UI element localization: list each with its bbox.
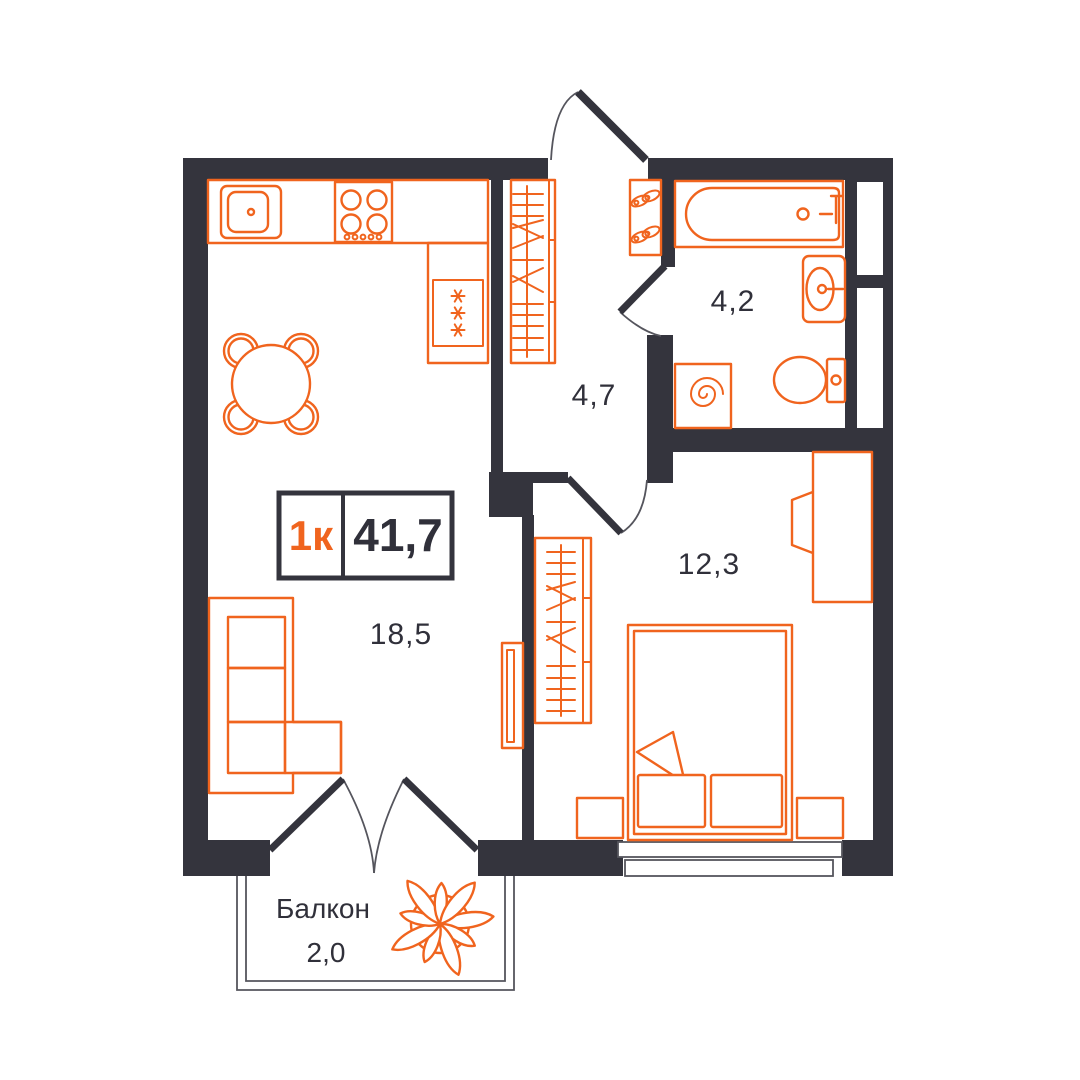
balcony-area-label: 2,0 <box>307 937 346 968</box>
fridge-icon <box>433 280 483 346</box>
plant-icon <box>389 876 495 977</box>
bedroom-door <box>568 478 647 533</box>
washbasin-icon <box>803 256 845 322</box>
bedroom-window <box>618 842 842 876</box>
room-label-bedroom: 12,3 <box>678 548 740 581</box>
area-badge: 1к 41,7 <box>279 493 452 578</box>
room-label-kitchen-living: 18,5 <box>370 618 432 651</box>
shoe-rack-icon <box>630 180 661 255</box>
balcony-name-label: Балкон <box>276 893 370 924</box>
floor-plan-canvas: 1к 41,7 18,5 4,7 4,2 12,3 Балкон 2,0 <box>0 0 1080 1080</box>
tv-icon <box>502 643 523 748</box>
sofa-icon <box>209 598 341 793</box>
floor-plan: 1к 41,7 18,5 4,7 4,2 12,3 Балкон 2,0 <box>0 0 1080 1080</box>
room-label-bathroom: 4,2 <box>711 285 756 318</box>
nightstand-icon <box>577 798 623 838</box>
washing-machine-icon <box>675 364 731 428</box>
room-label-hallway: 4,7 <box>572 379 617 412</box>
shaft-niche <box>857 182 883 275</box>
badge-area-label: 41,7 <box>353 509 443 561</box>
shaft-niche <box>857 288 883 428</box>
dining-table-icon <box>224 334 318 434</box>
kitchen-sink-icon <box>221 186 281 238</box>
bathroom-door <box>620 266 665 336</box>
desk-icon <box>813 452 872 602</box>
hall-wardrobe-icon <box>511 180 555 363</box>
entrance-door <box>551 92 646 160</box>
nightstand-icon <box>797 798 843 838</box>
toilet-icon <box>774 357 845 403</box>
bedroom-wardrobe-icon <box>535 538 591 723</box>
stove-icon <box>335 182 392 242</box>
bed-icon <box>628 625 792 840</box>
badge-rooms-label: 1к <box>289 512 334 559</box>
balcony-doors <box>270 779 477 873</box>
bathtub-icon <box>675 181 843 247</box>
